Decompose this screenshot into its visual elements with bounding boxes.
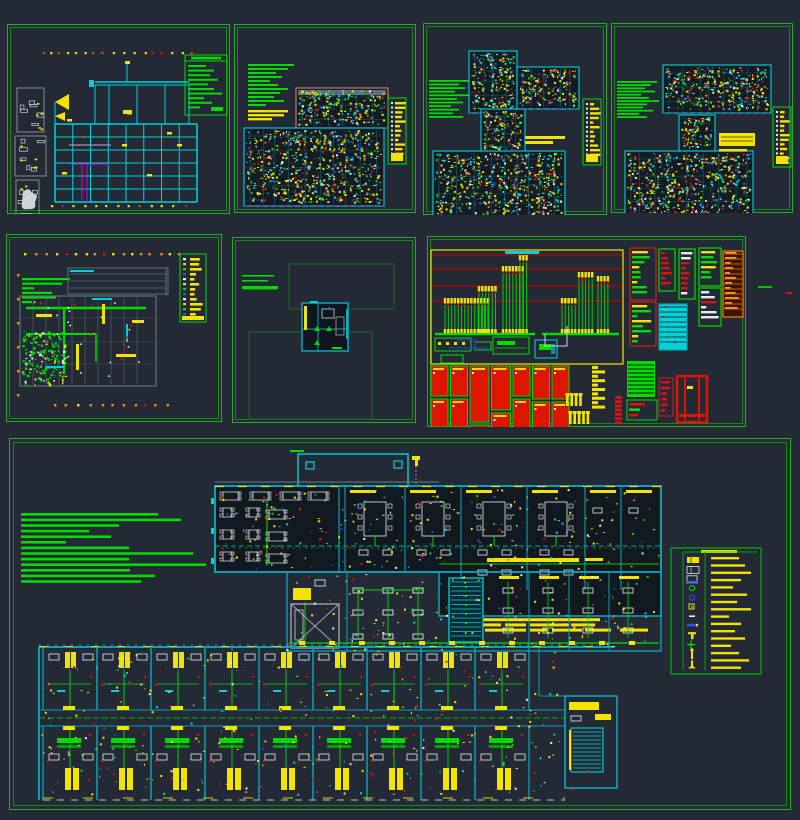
dash-white-icon <box>689 615 695 617</box>
dense-floor-plan-2-drawing <box>423 23 607 215</box>
power-distribution-diagram[interactable] <box>427 236 746 427</box>
circle-green-icon <box>689 586 694 591</box>
schedule-table <box>630 248 656 300</box>
power-distribution-diagram-drawing <box>427 236 746 427</box>
dense-floor-plan-1-drawing <box>234 24 416 213</box>
schedule-table <box>659 249 675 291</box>
legend-panel <box>180 254 206 322</box>
legend-panel <box>185 55 227 115</box>
dense-floor-plan-3-drawing <box>611 23 793 213</box>
panel-yellow-icon <box>687 557 699 563</box>
bar-blue-icon <box>687 624 698 627</box>
structural-grid-plan[interactable] <box>7 24 230 214</box>
schedule-table <box>699 288 721 326</box>
upper-wing-plan <box>215 486 661 616</box>
riser-diagram <box>431 250 623 364</box>
cad-model-space <box>0 0 800 820</box>
guest-room-band <box>39 645 615 800</box>
viewport-detail-sheet-drawing <box>232 237 416 423</box>
lamp-white-icon <box>687 566 699 573</box>
composite-floor-plan[interactable] <box>9 438 791 810</box>
schedule-table <box>699 248 721 286</box>
right-lobby <box>539 646 617 788</box>
dense-floor-plan-1[interactable] <box>234 24 416 213</box>
equipment-floor-plan[interactable] <box>6 234 222 422</box>
structural-grid-plan-drawing <box>7 24 230 214</box>
distribution-board-grid <box>431 366 569 427</box>
composite-floor-plan-drawing <box>9 438 791 810</box>
square-yellow-icon <box>689 604 694 609</box>
pole-yellow-base-icon <box>688 660 696 668</box>
detail-plan <box>302 301 348 351</box>
pole-yellow-icon <box>690 648 693 659</box>
cross-green-icon <box>687 641 695 649</box>
schedule-table <box>659 304 687 350</box>
legend-panel <box>671 548 761 674</box>
equipment-floor-plan-drawing <box>6 234 222 422</box>
lamp-white-blue-icon <box>687 576 697 583</box>
schedule-table <box>679 249 695 299</box>
tee-yellow-icon <box>688 632 696 639</box>
stairs <box>569 728 603 772</box>
viewport-detail-sheet[interactable] <box>232 237 416 423</box>
schedule-table <box>723 251 743 317</box>
dense-floor-plan-2[interactable] <box>423 23 607 215</box>
circle-blue-icon <box>689 595 694 600</box>
schedule-table <box>630 302 656 346</box>
dense-floor-plan-3[interactable] <box>611 23 793 213</box>
